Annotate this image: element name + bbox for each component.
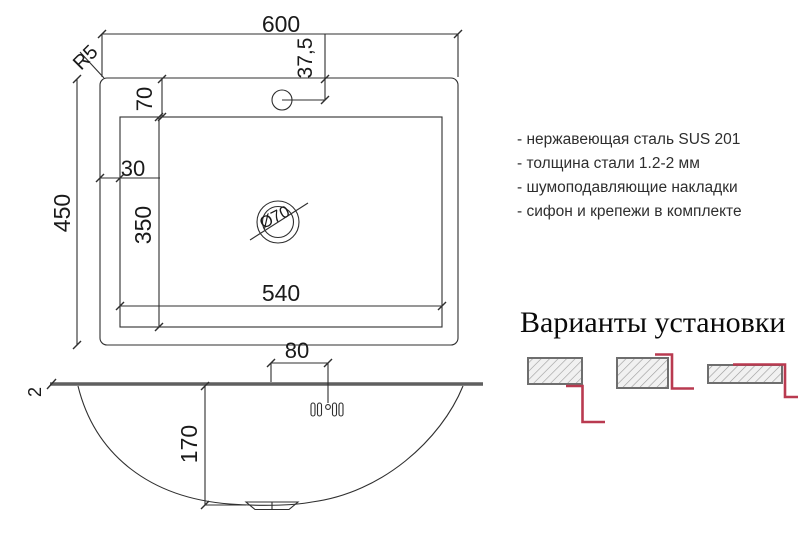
variant-overmount — [708, 365, 798, 398]
mount-slot — [318, 403, 322, 416]
spec-item-material: - нержавеющая сталь SUS 201 — [517, 128, 797, 152]
mount-slot — [333, 403, 337, 416]
variant-flush-mount — [617, 355, 694, 389]
dim-450-label: 450 — [49, 194, 75, 232]
spec-list: - нержавеющая сталь SUS 201 - толщина ст… — [517, 128, 797, 224]
sink-profile-red-line — [566, 386, 605, 422]
spec-item-thickness: - толщина стали 1.2-2 мм — [517, 152, 797, 176]
countertop-section — [617, 358, 668, 388]
countertop-section — [708, 365, 782, 383]
mount-slot — [311, 403, 315, 416]
dim-350-label: 350 — [130, 206, 156, 244]
variant-undermount — [528, 358, 605, 422]
dim-r5-label: R5 — [69, 41, 103, 75]
dim-70-label: 70 — [132, 87, 157, 111]
dim-600-label: 600 — [262, 11, 300, 37]
dim-80-label: 80 — [285, 338, 309, 363]
pilot-hole — [326, 405, 331, 410]
spec-item-included: - сифон и крепежи в комплекте — [517, 200, 797, 224]
dim-540-label: 540 — [262, 280, 300, 306]
drain-diameter-label: Ø70 — [257, 202, 293, 232]
countertop-section — [528, 358, 582, 384]
dim-30-label: 30 — [121, 156, 145, 181]
spec-item-noise-pads: - шумоподавляющие накладки — [517, 176, 797, 200]
side-bowl-curve — [78, 386, 463, 505]
technical-drawing: 600 450 37,5 70 350 30 540 R5 Ø70 80 170… — [0, 0, 800, 533]
mount-slot — [339, 403, 343, 416]
sink-drawing-page: 600 450 37,5 70 350 30 540 R5 Ø70 80 170… — [0, 0, 800, 533]
dim-37-5-label: 37,5 — [294, 38, 317, 79]
dim-170-label: 170 — [176, 425, 202, 463]
side-view — [47, 359, 483, 510]
dim-2-label: 2 — [25, 387, 45, 397]
installation-title: Варианты установки — [520, 306, 800, 340]
installation-variants — [528, 355, 798, 423]
